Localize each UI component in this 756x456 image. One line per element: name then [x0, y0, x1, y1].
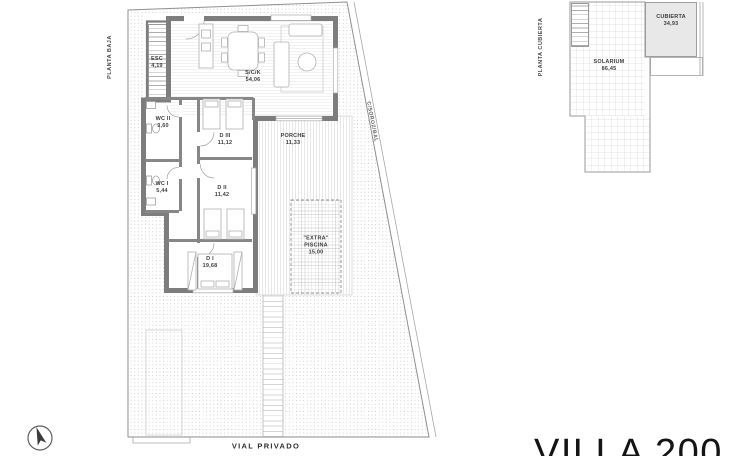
dining-table: [228, 32, 258, 70]
room-label-wc2: WC II 3,60: [128, 116, 198, 130]
room-label-cubierta: CUBIERTA 34,93: [636, 14, 706, 28]
ground-floor-title: PLANTA BAJA: [107, 35, 113, 79]
round-chair: [298, 53, 316, 71]
floor-plan-canvas: PLANTA BAJA PLANTA CUBIERTA ESC 4,19 S/C…: [0, 0, 756, 456]
roof-floor-title: PLANTA CUBIERTA: [538, 18, 544, 77]
sofa: [289, 24, 322, 36]
room-label-esc: ESC 4,19: [122, 56, 192, 70]
room-label-porche: PORCHE 11,33: [258, 133, 328, 147]
room-label-d3: D III 11,12: [190, 133, 260, 147]
room-label-sck: S/C/K 54,06: [218, 70, 288, 84]
north-compass-icon: [28, 426, 52, 450]
room-label-d2: D II 11,42: [187, 185, 257, 199]
room-label-piscina: "EXTRA" PISCINA 15,00: [281, 235, 351, 256]
room-label-solarium: SOLARIUM 86,45: [574, 59, 644, 73]
room-label-d1: D I 19,68: [175, 256, 245, 270]
private-road-label: VIAL PRIVADO: [232, 442, 300, 451]
villa-title: VILLA 200: [534, 432, 723, 456]
